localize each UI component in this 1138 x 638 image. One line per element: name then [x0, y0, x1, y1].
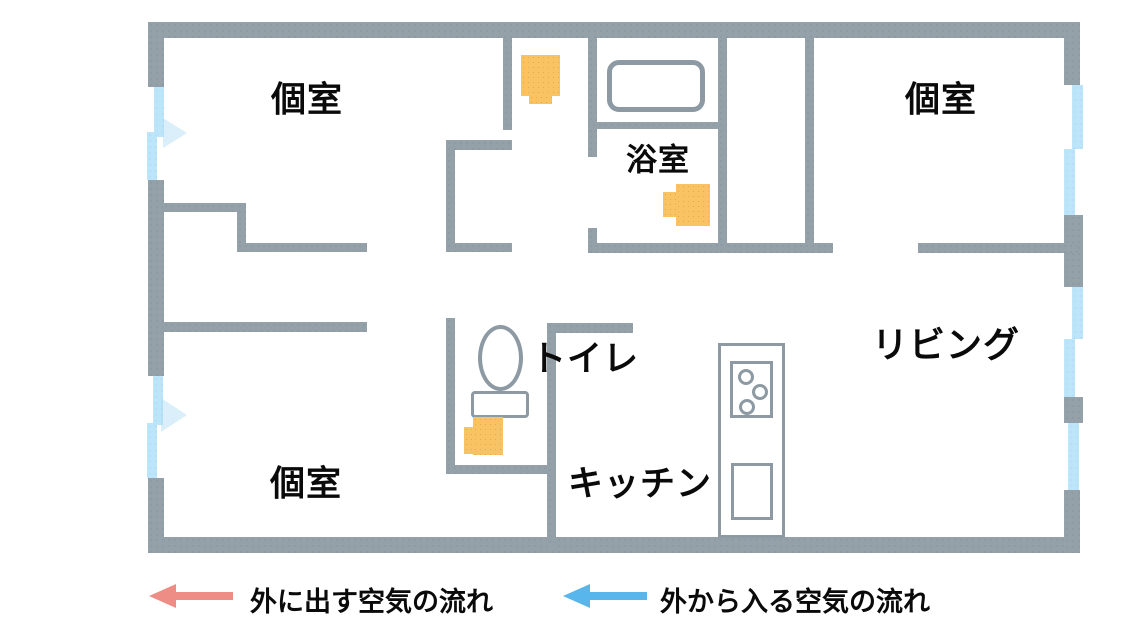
wall-bathroom-right [718, 38, 727, 253]
stove-burner [739, 399, 755, 415]
wall-bottom [148, 537, 1080, 553]
wall-washroom-left [446, 140, 455, 252]
wall-left-upper [148, 22, 164, 87]
air-intake-vent [147, 132, 157, 180]
legend-exhaust-label: 外に出す空気の流れ [250, 580, 493, 619]
air-intake-vent [1068, 423, 1079, 490]
exhaust-arrow-icon [148, 582, 234, 610]
air-intake-vent [147, 423, 157, 478]
wall-bedroomTL-right [503, 38, 512, 130]
stove-icon [730, 361, 773, 418]
stove-burner [738, 369, 754, 385]
wall-toilet-bottom [446, 465, 556, 474]
intake-flow-arrow [161, 398, 187, 432]
wall-right-upper [1064, 22, 1080, 85]
wall-hallway-top [237, 243, 367, 252]
sink-icon [731, 463, 773, 520]
room-label-bathroom: 浴室 [626, 135, 690, 180]
wall-closet-right [805, 38, 814, 243]
room-label-bedroom-top-right: 個室 [905, 72, 977, 123]
room-label-toilet: トイレ [531, 331, 639, 382]
intake-flow-arrow [163, 118, 187, 148]
wall-bedroomTR-bottom [918, 243, 1078, 253]
room-label-kitchen: キッチン [568, 456, 712, 507]
wall-bedroomTL-bottom [163, 203, 238, 212]
wall-bathroom-bottom [588, 243, 833, 253]
toilet-tank [471, 391, 529, 418]
wall-bedroomBL-top [163, 322, 367, 332]
toilet-icon [478, 325, 523, 391]
wall-bathroom-left-upper [588, 38, 597, 157]
room-label-bedroom-bottom-left: 個室 [270, 456, 342, 507]
wall-washroom-top-arm [446, 140, 512, 150]
room-label-living: リビング [872, 316, 1020, 368]
wall-left-middle [148, 180, 164, 376]
air-intake-vent [1064, 339, 1075, 397]
wall-top [148, 22, 1078, 38]
air-intake-vent [1064, 149, 1075, 215]
air-intake-vent [1072, 287, 1083, 339]
wall-right-lower [1064, 490, 1080, 553]
wall-bathtub-divider [591, 122, 718, 129]
stove-burner [752, 384, 768, 400]
room-label-bedroom-top-left: 個室 [271, 72, 343, 123]
wall-right-mid2 [1064, 397, 1083, 423]
legend-intake-label: 外から入る空気の流れ [660, 580, 930, 619]
intake-arrow-icon [562, 582, 648, 610]
floor-plan: 個室 個室 浴室 トイレ キッチン リビング 個室 外に出す空気の流れ 外から入… [0, 0, 1138, 638]
air-intake-vent [1072, 85, 1083, 149]
wall-toilet-left [446, 318, 455, 473]
wall-washroom-bottom-arm [446, 243, 512, 252]
bathtub-icon [607, 60, 705, 112]
